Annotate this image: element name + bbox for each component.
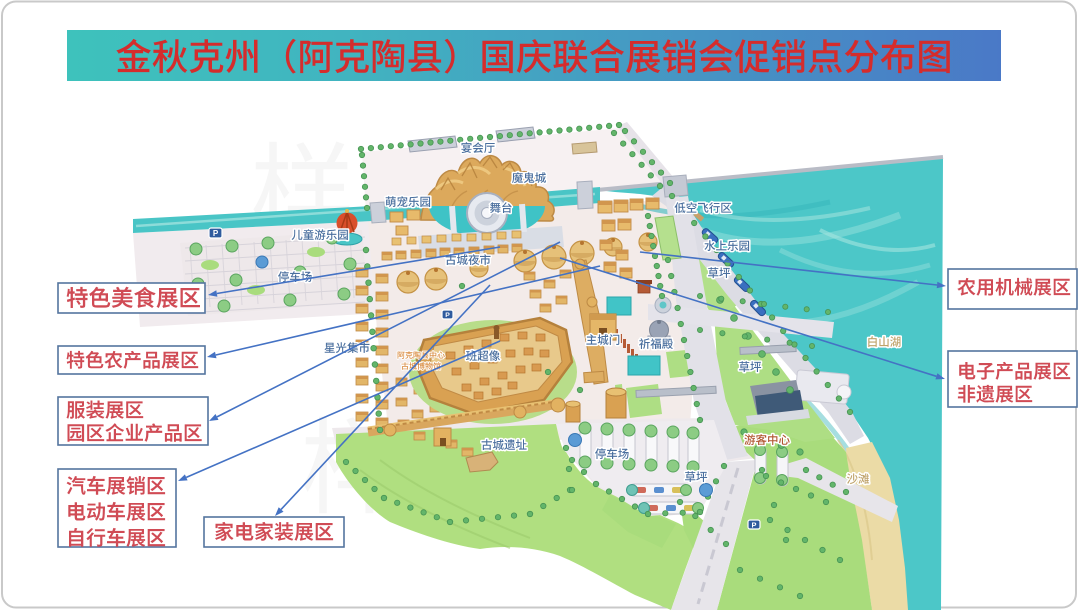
svg-text:P: P: [445, 312, 450, 319]
svg-text:P: P: [213, 229, 219, 238]
svg-text:P: P: [752, 520, 757, 529]
